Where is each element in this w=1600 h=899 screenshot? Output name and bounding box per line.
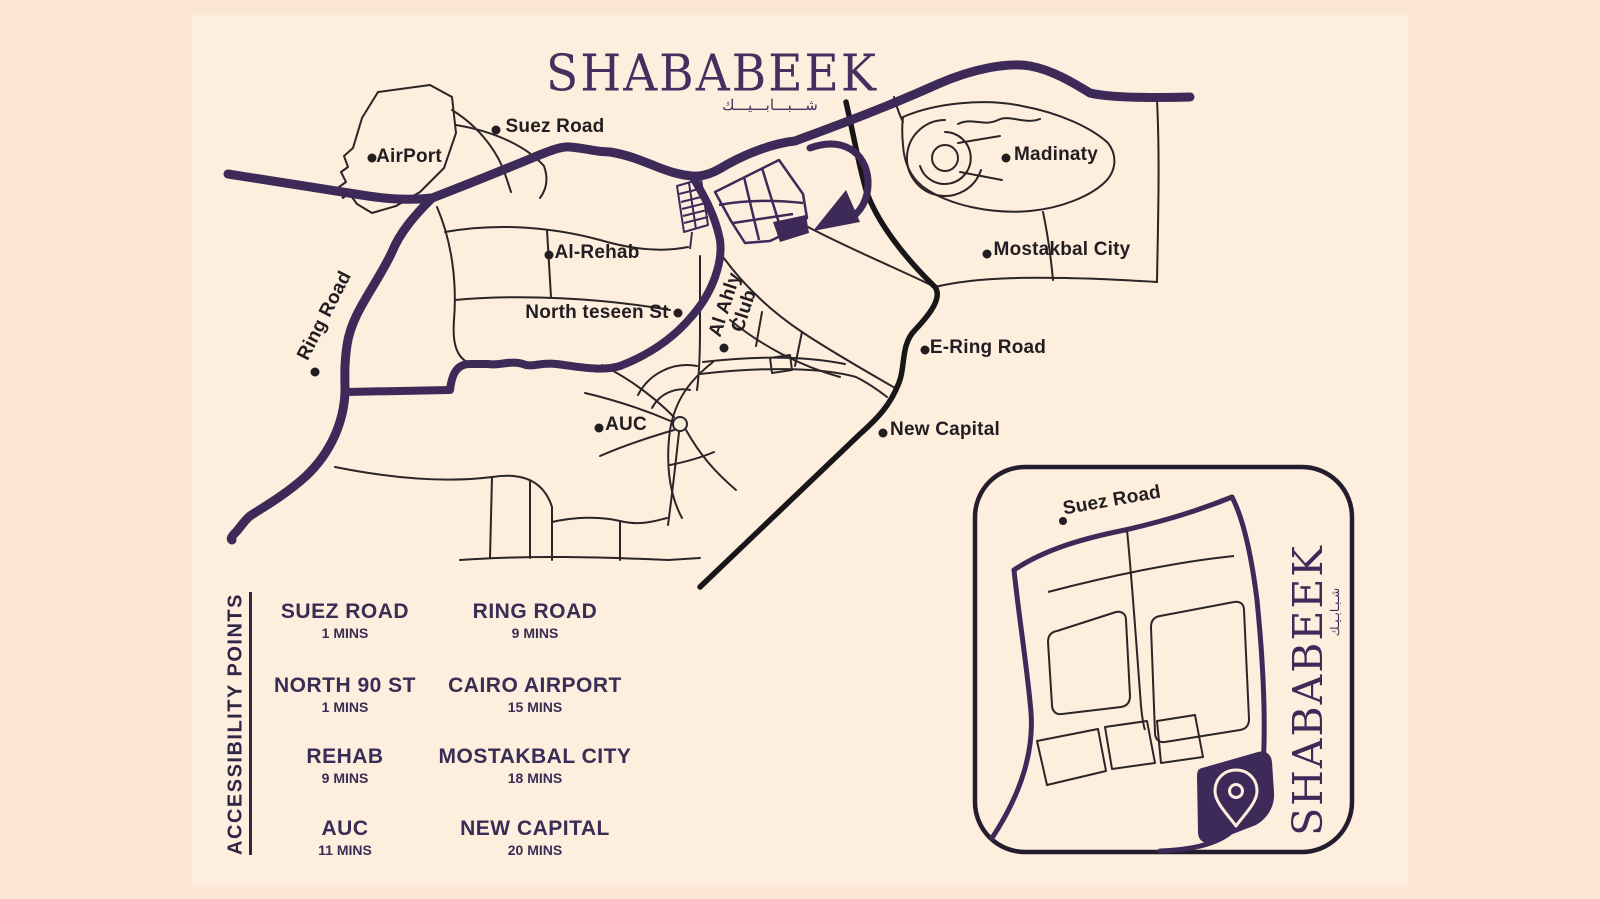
ring-road-west-line [228,174,432,199]
dot-auc [595,424,604,433]
legend-item-name: NORTH 90 ST [274,674,416,698]
legend-item-north-90: NORTH 90 ST 1 MINS [274,674,416,715]
dot-new-capital [879,429,888,438]
legend-item-rehab: REHAB 9 MINS [306,745,383,786]
inset-brand-vertical: SHABABEEK [1284,544,1332,836]
location-map-poster: SHABABEEK شـــبـــابـــيـــك Suez Road A… [0,0,1600,899]
map-label-auc: AUC [605,414,647,436]
legend-heading: ACCESSIBILITY POINTS [225,593,248,855]
brand-title-arabic: شـــبـــابـــيـــك [722,96,818,114]
dot-al-rehab [545,251,554,260]
inset-minor-roads [1037,530,1249,785]
roundabout-circle [673,417,687,431]
legend-item-time: 20 MINS [460,842,610,858]
inset-brand-vertical-arabic: شـبـابـيـك [1328,588,1342,636]
map-label-airport: AirPort [376,146,442,168]
legend-item-cairo-airport: CAIRO AIRPORT 15 MINS [448,674,622,715]
dot-madinaty [1002,154,1011,163]
dot-north-teseen [674,309,683,318]
legend-item-auc: AUC 11 MINS [318,817,372,858]
dot-ring-road [311,368,320,377]
map-label-new-capital: New Capital [890,419,1000,441]
rehab-loop-line [345,176,721,392]
legend-item-time: 1 MINS [274,699,416,715]
dot-suez-road [492,126,501,135]
legend-item-time: 1 MINS [281,625,409,641]
legend-item-time: 18 MINS [439,770,632,786]
legend-item-name: RING ROAD [473,600,598,624]
legend-item-time: 11 MINS [318,842,372,858]
dot-mostakbal [983,250,992,259]
legend-item-name: MOSTAKBAL CITY [439,745,632,769]
legend-item-suez-road: SUEZ ROAD 1 MINS [281,600,409,641]
map-label-north-teseen: North teseen St [525,302,668,324]
site-grid-strip [677,179,708,249]
dot-e-ring [921,346,930,355]
direction-arrow [810,144,868,231]
arrowhead [813,190,860,231]
legend-item-name: NEW CAPITAL [460,817,610,841]
map-label-madinaty: Madinaty [1014,144,1098,166]
legend-item-time: 15 MINS [448,699,622,715]
legend-item-name: CAIRO AIRPORT [448,674,622,698]
legend-item-name: REHAB [306,745,383,769]
map-label-suez-road: Suez Road [506,116,605,138]
legend-item-time: 9 MINS [473,625,598,641]
map-label-mostakbal-city: Mostakbal City [994,239,1131,261]
legend-item-ring-road: RING ROAD 9 MINS [473,600,598,641]
legend-item-new-capital: NEW CAPITAL 20 MINS [460,817,610,858]
map-label-al-rehab: Al-Rehab [555,242,640,264]
legend-divider [249,592,252,855]
map-label-e-ring-road: E-Ring Road [930,337,1046,359]
legend-item-mostakbal-city: MOSTAKBAL CITY 18 MINS [439,745,632,786]
legend-item-name: AUC [318,817,372,841]
ring-road-line [231,198,432,540]
brand-title: SHABABEEK [546,44,878,103]
legend-item-time: 9 MINS [306,770,383,786]
legend-item-name: SUEZ ROAD [281,600,409,624]
